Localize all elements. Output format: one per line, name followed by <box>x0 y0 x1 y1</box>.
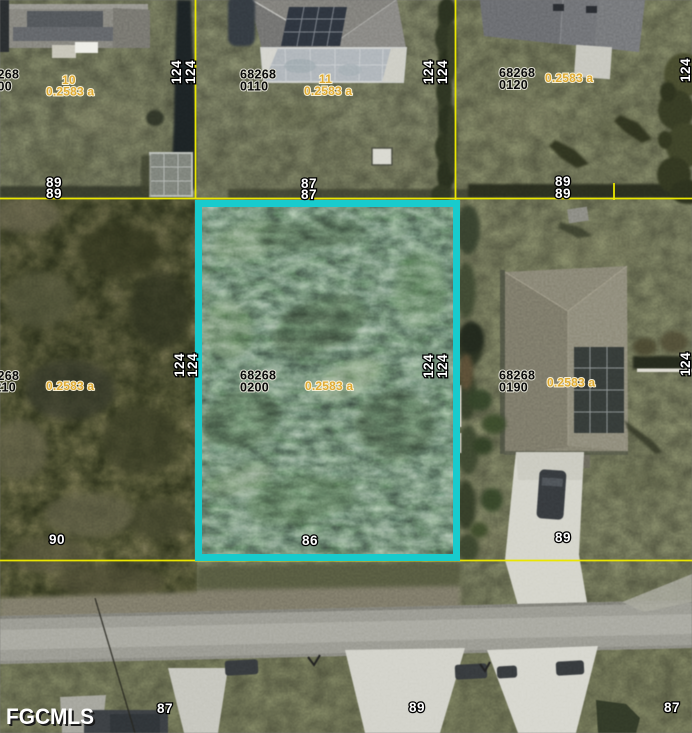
svg-text:87: 87 <box>157 701 173 716</box>
svg-text:0110: 0110 <box>240 80 268 94</box>
svg-text:124: 124 <box>435 354 450 378</box>
svg-text:89: 89 <box>409 700 425 715</box>
svg-text:0.2583 a: 0.2583 a <box>547 376 595 390</box>
svg-text:0.2583 a: 0.2583 a <box>545 71 593 85</box>
svg-text:124: 124 <box>421 354 436 378</box>
svg-text:0.2583 a: 0.2583 a <box>304 84 352 98</box>
svg-text:0210: 0210 <box>0 381 16 395</box>
svg-text:124: 124 <box>183 60 198 84</box>
svg-text:124: 124 <box>185 353 200 377</box>
svg-text:89: 89 <box>46 186 62 201</box>
svg-text:87: 87 <box>664 700 680 715</box>
svg-text:0.2583 a: 0.2583 a <box>46 85 94 99</box>
svg-text:124: 124 <box>435 60 450 84</box>
svg-text:124: 124 <box>169 60 184 84</box>
svg-text:89: 89 <box>555 186 571 201</box>
svg-text:0200: 0200 <box>240 381 269 395</box>
svg-text:0120: 0120 <box>499 78 528 92</box>
svg-text:87: 87 <box>301 187 317 202</box>
svg-text:124: 124 <box>421 60 436 84</box>
svg-text:124: 124 <box>678 58 692 82</box>
svg-text:0100: 0100 <box>0 80 12 94</box>
svg-text:0.2583 a: 0.2583 a <box>46 379 94 393</box>
svg-text:90: 90 <box>49 532 65 547</box>
svg-text:0190: 0190 <box>499 381 528 395</box>
svg-text:0.2583 a: 0.2583 a <box>305 379 353 393</box>
svg-text:FGCMLS: FGCMLS <box>6 704 94 729</box>
svg-text:89: 89 <box>555 530 571 545</box>
svg-text:124: 124 <box>678 352 692 376</box>
svg-text:86: 86 <box>302 533 318 548</box>
